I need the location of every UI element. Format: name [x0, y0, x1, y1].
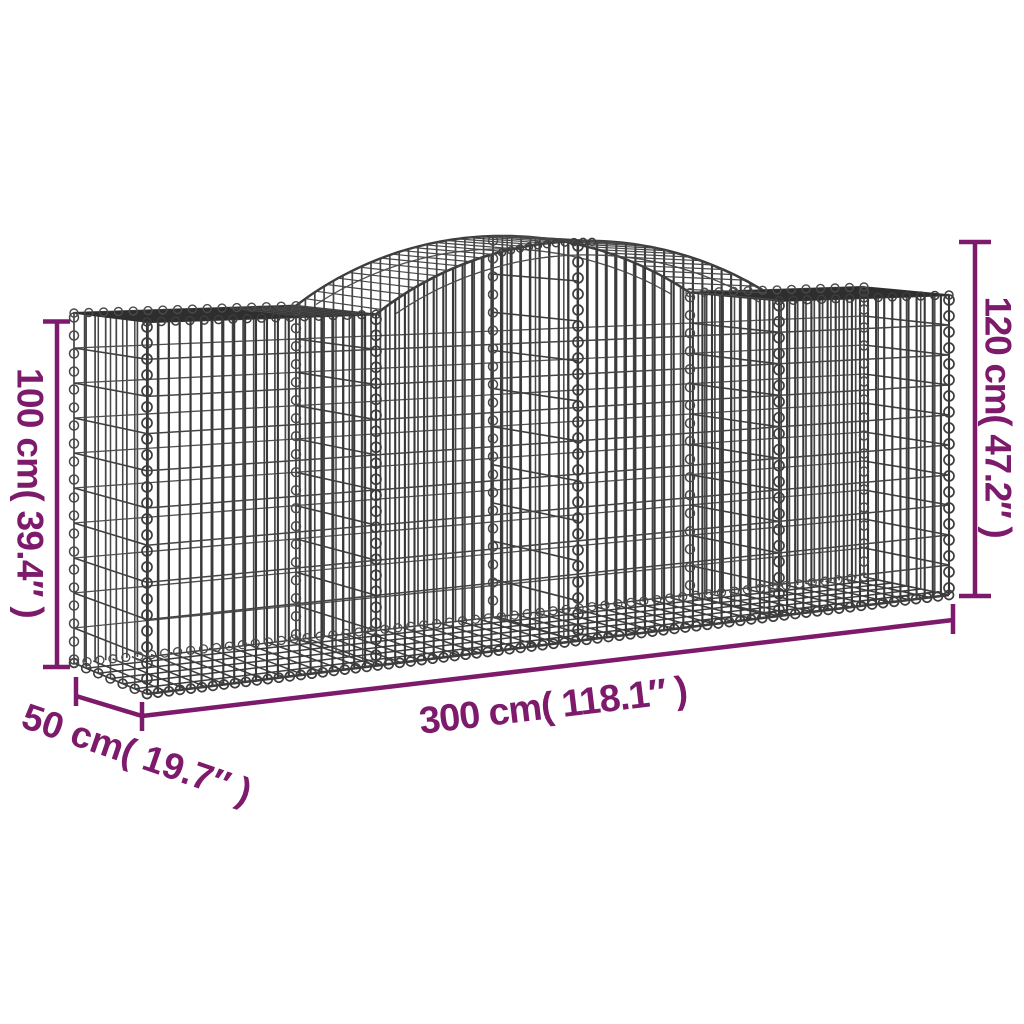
svg-text:120 cm( 47.2″ ): 120 cm( 47.2″ ) — [978, 297, 1019, 538]
svg-text:100 cm( 39.4″ ): 100 cm( 39.4″ ) — [10, 368, 51, 618]
